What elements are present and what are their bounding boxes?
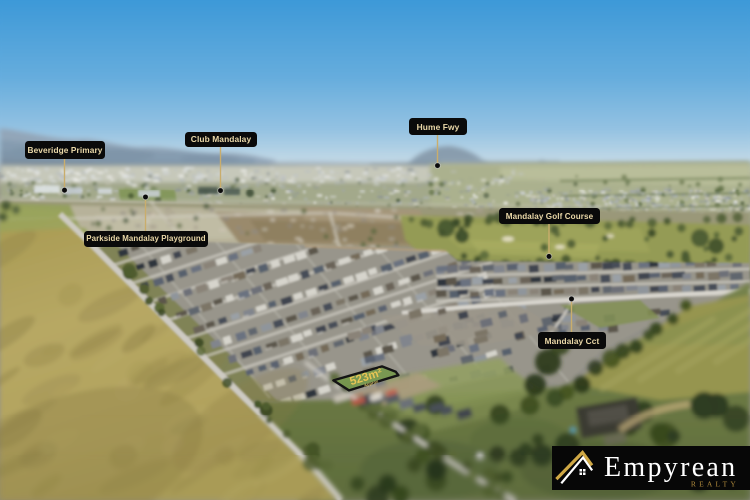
svg-text:REALTY: REALTY xyxy=(691,480,739,489)
svg-text:Empyrean: Empyrean xyxy=(604,452,737,483)
